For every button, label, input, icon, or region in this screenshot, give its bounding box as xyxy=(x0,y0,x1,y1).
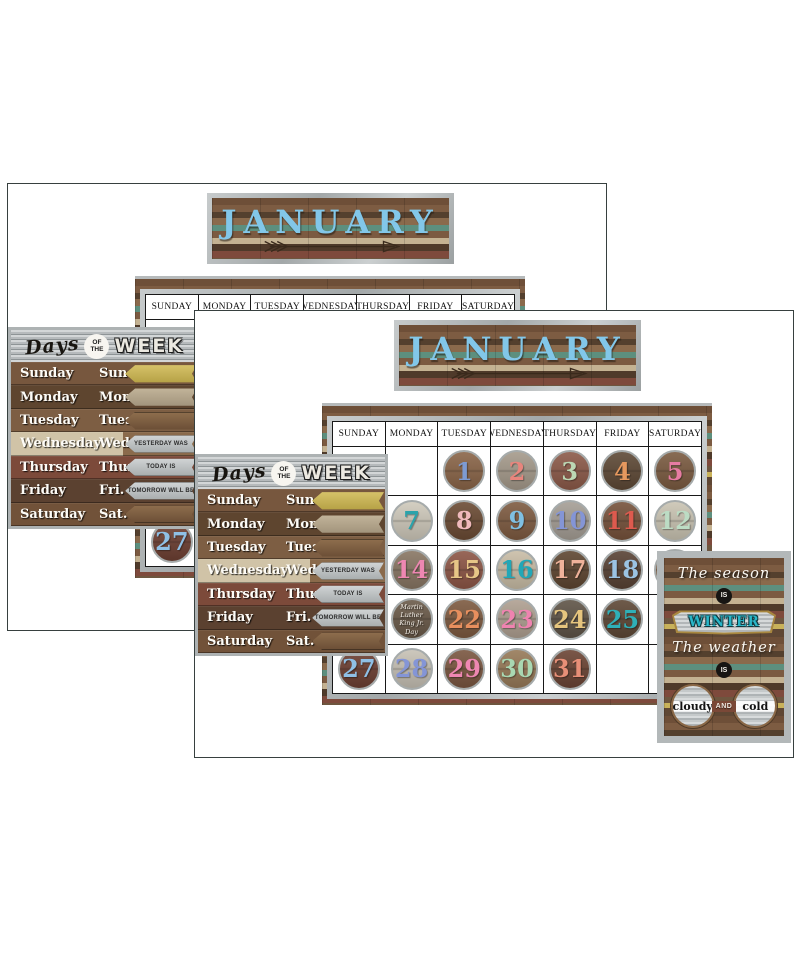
month-banner: JANUARY xyxy=(207,193,454,264)
days-chart-title-main: WEEK xyxy=(114,335,184,357)
weather-row: cloudy AND cold xyxy=(671,684,778,728)
weekday-header: FRIDAY xyxy=(597,422,649,446)
weather-value-1: cloudy xyxy=(671,684,715,728)
arrow-marker: TOMORROW WILL BE xyxy=(125,482,197,500)
calendar-cell: 8 xyxy=(438,496,490,544)
days-chart-header: Days OF THE WEEK xyxy=(198,457,385,489)
month-title: JANUARY xyxy=(408,333,626,365)
weather-value-2: cold xyxy=(733,684,777,728)
days-of-week-chart: Days OF THE WEEK SundaySun.MondayMon.Tue… xyxy=(8,327,201,529)
calendar-cell: 5 xyxy=(649,447,701,495)
date-piece: 5 xyxy=(654,450,696,492)
day-row: TuesdayTues. xyxy=(11,409,198,432)
badge-line-bottom: THE xyxy=(277,473,290,480)
date-piece: 11 xyxy=(601,500,643,542)
of-the-badge: OF THE xyxy=(271,461,296,486)
and-ribbon: AND xyxy=(712,701,737,712)
calendar-cell: 28 xyxy=(386,645,438,693)
day-row: SaturdaySat. xyxy=(11,503,198,526)
date-piece: 28 xyxy=(391,648,433,690)
date-piece: 2 xyxy=(496,450,538,492)
day-abbr: Sat. xyxy=(99,507,127,522)
calendar-cell: 12 xyxy=(649,496,701,544)
season-value: WINTER xyxy=(674,612,774,633)
calendar-cell: 17 xyxy=(544,546,596,594)
day-row: SundaySun. xyxy=(198,489,385,512)
calendar-cell: 22 xyxy=(438,595,490,643)
days-chart-title-main: WEEK xyxy=(301,462,371,484)
arrow-marker xyxy=(125,365,197,383)
calendar-cell: 14 xyxy=(386,546,438,594)
date-piece: 9 xyxy=(496,500,538,542)
calendar-cell: 23 xyxy=(491,595,543,643)
arrow-marker xyxy=(125,412,197,430)
days-of-week-chart: Days OF THE WEEK SundaySun.MondayMon.Tue… xyxy=(195,454,388,656)
day-row: WednesdayWed.YESTERDAY WAS xyxy=(11,432,198,455)
is-badge: IS xyxy=(716,588,732,604)
date-piece: 25 xyxy=(601,598,643,640)
day-row: ThursdayThurs.TODAY IS xyxy=(11,456,198,479)
date-piece: 7 xyxy=(391,500,433,542)
day-row: SundaySun. xyxy=(11,362,198,385)
arrow-marker: TODAY IS xyxy=(312,585,384,603)
days-rows: SundaySun.MondayMon.TuesdayTues.Wednesda… xyxy=(11,362,198,526)
badge-line-bottom: THE xyxy=(90,346,103,353)
date-piece: 16 xyxy=(496,549,538,591)
date-piece: 3 xyxy=(549,450,591,492)
day-name: Monday xyxy=(20,390,78,405)
days-chart-title-script: Days xyxy=(24,333,80,360)
calendar-cell: 25 xyxy=(597,595,649,643)
weekday-header: SUNDAY xyxy=(146,295,198,319)
date-piece: 30 xyxy=(496,648,538,690)
calendar-cell xyxy=(386,447,438,495)
day-name: Tuesday xyxy=(20,413,79,428)
month-title: JANUARY xyxy=(221,206,439,238)
arrow-marker xyxy=(312,632,384,650)
day-name: Thursday xyxy=(20,460,88,475)
weekday-header: TUESDAY xyxy=(438,422,490,446)
season-banner: WINTER xyxy=(672,610,776,635)
arrow-icon xyxy=(432,366,604,381)
calendar-cell: 4 xyxy=(597,447,649,495)
days-chart-title-script: Days xyxy=(211,460,267,487)
days-chart-header: Days OF THE WEEK xyxy=(11,330,198,362)
calendar-cell: 16 xyxy=(491,546,543,594)
calendar-cell: 7 xyxy=(386,496,438,544)
day-name: Wednesday xyxy=(207,563,288,578)
is-badge: IS xyxy=(716,662,732,678)
day-name: Monday xyxy=(207,517,265,532)
calendar-cell: 2 xyxy=(491,447,543,495)
date-piece: 29 xyxy=(443,648,485,690)
calendar-set-panel-front: JANUARY SUNDAYMONDAYTUESDAYWEDNESDAYTHUR… xyxy=(194,310,794,758)
day-abbr: Fri. xyxy=(286,610,311,625)
arrow-marker xyxy=(125,505,197,523)
day-row: SaturdaySat. xyxy=(198,630,385,653)
calendar-cell xyxy=(597,645,649,693)
date-piece: 24 xyxy=(549,598,591,640)
month-banner: JANUARY xyxy=(394,320,641,391)
date-piece: 1 xyxy=(443,450,485,492)
calendar-cell: 1 xyxy=(438,447,490,495)
calendar-cell: 10 xyxy=(544,496,596,544)
calendar-cell: 9 xyxy=(491,496,543,544)
date-piece: 12 xyxy=(654,500,696,542)
day-name: Sunday xyxy=(20,366,73,381)
date-piece: 22 xyxy=(443,598,485,640)
weekday-header: SATURDAY xyxy=(649,422,701,446)
day-name: Sunday xyxy=(207,493,260,508)
calendar-cell: 11 xyxy=(597,496,649,544)
calendar-cell: 3 xyxy=(544,447,596,495)
arrow-marker: TODAY IS xyxy=(125,458,197,476)
badge-line-top: OF xyxy=(92,339,101,346)
day-name: Saturday xyxy=(207,634,272,649)
day-name: Thursday xyxy=(207,587,275,602)
calendar-cell: 29 xyxy=(438,645,490,693)
arrow-marker xyxy=(312,515,384,533)
date-piece: 23 xyxy=(496,598,538,640)
date-piece: 4 xyxy=(601,450,643,492)
day-row: FridayFri.TOMORROW WILL BE xyxy=(198,606,385,629)
day-row: ThursdayThurs.TODAY IS xyxy=(198,583,385,606)
holiday-date-piece: MartinLuther King Jr.Day xyxy=(391,598,433,640)
day-abbr: Sat. xyxy=(286,634,314,649)
month-banner-wood: JANUARY xyxy=(212,198,449,259)
date-piece: 17 xyxy=(549,549,591,591)
weather-label: The weather xyxy=(672,640,776,656)
day-name: Friday xyxy=(20,483,66,498)
day-name: Tuesday xyxy=(207,540,266,555)
arrow-marker: TOMORROW WILL BE xyxy=(312,609,384,627)
date-piece: 15 xyxy=(443,549,485,591)
badge-line-top: OF xyxy=(279,466,288,473)
calendar-cell: 31 xyxy=(544,645,596,693)
arrow-marker xyxy=(312,539,384,557)
date-piece: 8 xyxy=(443,500,485,542)
day-name: Saturday xyxy=(20,507,85,522)
day-abbr: Fri. xyxy=(99,483,124,498)
day-row: FridayFri.TOMORROW WILL BE xyxy=(11,479,198,502)
arrow-marker: YESTERDAY WAS xyxy=(312,562,384,580)
day-row: MondayMon. xyxy=(11,385,198,408)
day-name: Friday xyxy=(207,610,253,625)
arrow-marker: YESTERDAY WAS xyxy=(125,435,197,453)
arrow-marker xyxy=(312,492,384,510)
calendar-cell: MartinLuther King Jr.Day xyxy=(386,595,438,643)
arrow-icon xyxy=(245,239,417,254)
season-label: The season xyxy=(678,566,770,582)
date-piece: 18 xyxy=(601,549,643,591)
day-name: Wednesday xyxy=(20,436,101,451)
calendar-cell: 24 xyxy=(544,595,596,643)
day-row: WednesdayWed.YESTERDAY WAS xyxy=(198,559,385,582)
of-the-badge: OF THE xyxy=(84,334,109,359)
date-piece: 31 xyxy=(549,648,591,690)
season-weather-sign: The season IS WINTER The weather IS clou… xyxy=(657,551,791,743)
weekday-header: WEDNESDAY xyxy=(491,422,543,446)
arrow-marker xyxy=(125,388,197,406)
weekday-header: THURSDAY xyxy=(544,422,596,446)
product-image: JANUARY SUNDAYMONDAYTUESDAYWEDNESDAYTHUR… xyxy=(0,0,800,960)
date-piece: 10 xyxy=(549,500,591,542)
calendar-cell: 30 xyxy=(491,645,543,693)
day-row: MondayMon. xyxy=(198,512,385,535)
weekday-header: SUNDAY xyxy=(333,422,385,446)
date-piece: 14 xyxy=(391,549,433,591)
day-row: TuesdayTues. xyxy=(198,536,385,559)
calendar-cell: 15 xyxy=(438,546,490,594)
days-rows: SundaySun.MondayMon.TuesdayTues.Wednesda… xyxy=(198,489,385,653)
calendar-cell: 18 xyxy=(597,546,649,594)
weekday-header: MONDAY xyxy=(386,422,438,446)
month-banner-wood: JANUARY xyxy=(399,325,636,386)
